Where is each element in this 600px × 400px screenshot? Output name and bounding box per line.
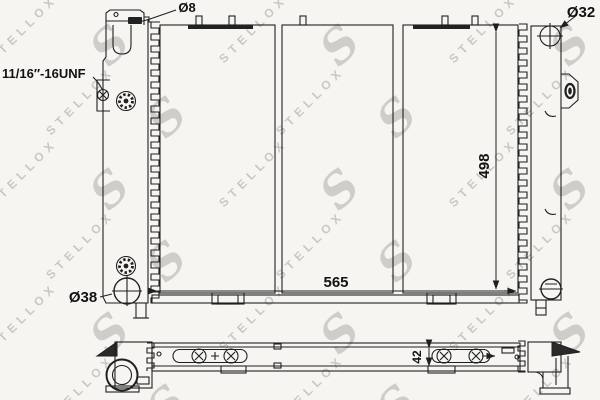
side-bracket [561,74,578,108]
joint-castellation-right [518,341,525,372]
core-depth-label: 42 [410,350,424,364]
inlet-port [537,23,563,49]
core-width-label: 565 [323,274,348,291]
drawing-canvas: SSTELLOXSSTELLOXSSTELLOXSSTELLOXSSTELLOX… [0,0,600,400]
right-tank-outline [531,26,561,300]
core-panel-3 [403,25,518,293]
mount-slot-left [173,349,247,363]
right-corner-gusset [552,342,580,356]
bottom-side-plate [152,295,519,303]
core-panel-2 [282,25,393,293]
break-squiggle-upper [545,111,556,116]
cap-vent-hole [114,13,118,17]
dimension-width: 565 [157,274,516,291]
inlet-port-label: Ø32 [567,4,595,21]
core [152,16,519,304]
outlet-label: Ø38 [69,289,97,306]
mount-slot-right [432,349,495,363]
bleed-port [128,17,142,24]
serrated-edge-right [519,24,527,303]
top-plate-segment-2 [413,25,470,29]
bar-foot-right [428,366,455,373]
right-tank [531,23,578,315]
top-mount-tabs [196,16,478,25]
outlet-side-stub [137,377,149,384]
radiator-drawing: 565 498 Ø8 Ø32 11/16″-16UNF Ø38 [0,0,600,400]
bar-clip [502,348,514,353]
thread-spec-label: 11/16″-16UNF [2,66,86,81]
callouts: Ø8 Ø32 11/16″-16UNF Ø38 [2,0,595,306]
bottom-right-tank [518,341,580,394]
front-view: 565 498 Ø8 Ø32 11/16″-16UNF Ø38 [2,0,595,318]
top-plate-segment-1 [188,25,253,29]
bottom-bar: 42 [152,343,520,373]
bottom-view: 42 [97,341,580,394]
outlet-port [112,276,149,318]
bar-foot-left [221,366,246,373]
lower-boss [117,257,136,276]
core-panel-1 [160,25,275,293]
dimension-depth: 42 [410,348,429,366]
drain-plug [536,279,563,315]
bottom-left-tank [97,342,154,392]
break-squiggle-lower [545,209,556,214]
filler-neck [113,25,131,54]
small-hole [157,352,161,356]
serrated-edge-left [151,22,159,303]
dimension-height: 498 [476,32,496,289]
left-tank [97,10,149,318]
inlet-elbow-pipe [536,356,570,394]
bleed-port-label: Ø8 [178,0,195,15]
leader-outlet [100,294,112,297]
leader-bleed-port [143,10,176,21]
left-corner-gusset [97,342,117,356]
upper-boss [117,92,136,111]
core-height-label: 498 [476,153,493,178]
